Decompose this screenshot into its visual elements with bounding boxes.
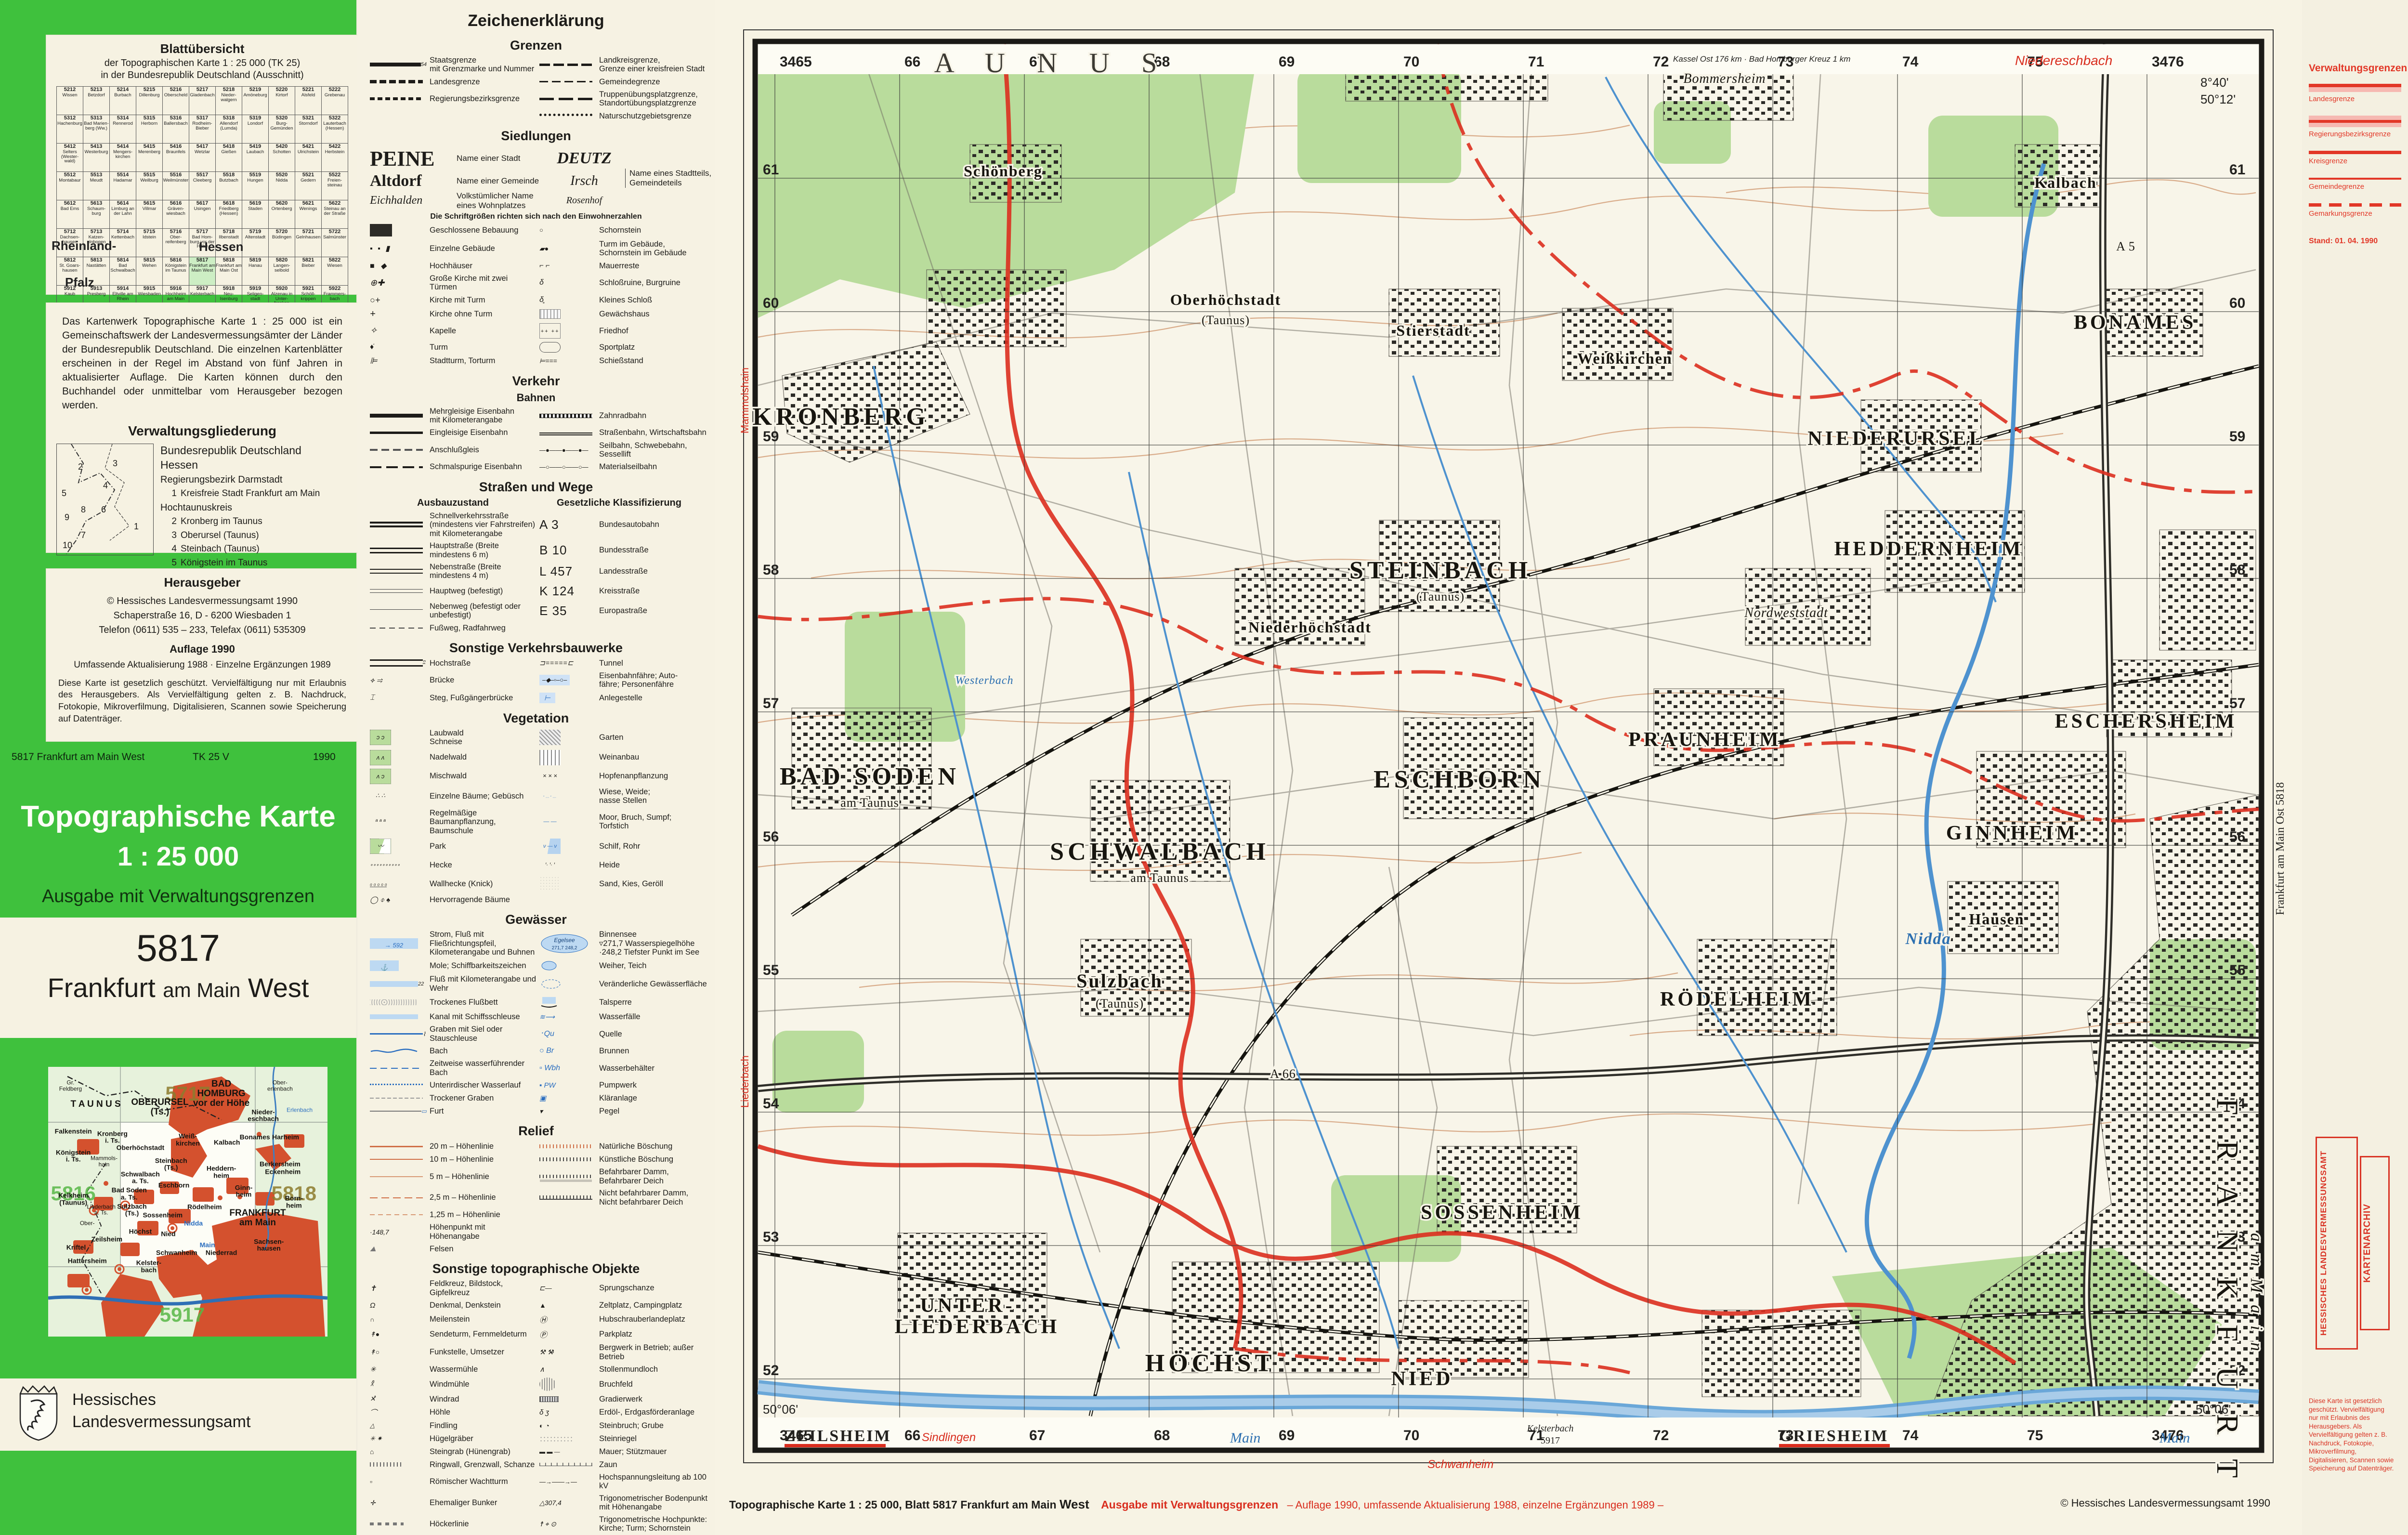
sheet-cell-5721: 5721Gelnhausen <box>295 229 322 257</box>
sheet-cell-5314: 5314Rennerod <box>110 115 136 144</box>
bottom-label-griesheim: GRIESHEIM <box>1779 1427 1888 1445</box>
admin-structure-title: Verwaltungsgliederung <box>46 423 359 439</box>
legend-symbol-s_ko: + <box>370 309 427 320</box>
legend-label: Regierungsbezirksgrenze <box>430 94 537 103</box>
legend-note: Die Schriftgrößen richten sich nach den … <box>370 212 702 221</box>
legend-symbol-re_20 <box>370 1141 427 1151</box>
legend-label: Bach <box>430 1047 537 1055</box>
legend-symbol-w_fall: ≋⟶ <box>539 1012 596 1022</box>
legend-label: Seilbahn, Schwebebahn, Sessellift <box>599 441 711 459</box>
legend-symbol-o_funk: ↟○ <box>370 1348 427 1357</box>
legend-symbol-w_trofl <box>370 997 427 1007</box>
sheet-cell-5512: 5512Montabaur <box>57 172 83 200</box>
grid-number: 74 <box>1902 54 1919 70</box>
legend-label: Hochstraße <box>430 659 537 668</box>
legend-symbol-v_zahn <box>539 411 596 420</box>
inset-place-label: Sossenheim <box>143 1212 183 1219</box>
legend-symbol-s_sturm: ⊫ <box>370 356 427 366</box>
sheet-cell-5422: 5422Herbstein <box>322 144 348 172</box>
inset-place-label: Kalbach <box>214 1139 240 1146</box>
inset-place-label: Born- heim <box>285 1194 303 1208</box>
legend-label: Mole; Schiffbarkeitszeichen <box>430 961 537 970</box>
legend-symbol-s_beb <box>370 224 427 236</box>
map-place-label: Nordweststadt <box>1744 605 1828 620</box>
sheet-cell-5520: 5520Nidda <box>269 172 295 200</box>
sheet-cell-5213: 5213Betzdorf <box>83 87 110 115</box>
legend-label: Straßenbahn, Wirtschaftsbahn <box>599 428 711 437</box>
legend-label: Funkstelle, Umsetzer <box>430 1348 537 1356</box>
legend-label: Furt <box>430 1107 537 1115</box>
legend-label: Höhenpunkt mit Höhenangabe <box>430 1223 537 1241</box>
legend-label: Sportplatz <box>599 343 711 352</box>
legend-label: Graben mit Siel oder Stauschleuse <box>430 1025 537 1043</box>
inset-place-label: Steinbach (Ts.) <box>155 1157 187 1171</box>
legend-symbol-g_staat: 54 <box>370 60 427 69</box>
inset-place-label: Weiß- kirchen <box>176 1133 200 1147</box>
legend-symbol-o_riegel <box>539 1434 596 1443</box>
road-class-label: Bundesautobahn <box>599 520 711 529</box>
sheet-cell-5215: 5215Dillenburg <box>136 87 163 115</box>
legend-label: Schilf, Rohr <box>599 842 711 851</box>
legend-label: Zaun <box>599 1460 711 1469</box>
legend-label: Geschlossene Bebauung <box>430 226 537 235</box>
legend-symbol-g_nat <box>539 111 596 121</box>
legend-label: Schloßruine, Burgruine <box>599 278 711 287</box>
legend-symbol-o_zaun <box>539 1460 596 1469</box>
cover-subtitle: Ausgabe mit Verwaltungsgrenzen <box>0 886 356 907</box>
legend-label: Landesgrenze <box>430 78 537 86</box>
admin-borders-legend: LandesgrenzeRegierungsbezirksgrenzeKreis… <box>2302 84 2408 218</box>
stand-date: Stand: 01. 04. 1990 <box>2309 237 2401 246</box>
sheet-cell-5821: 5821Bieber <box>295 257 322 286</box>
legend-symbol-s_geb: ▪ ▪ ▮ <box>370 244 427 253</box>
legend-label: Trigonometrische Hochpunkte: Kirche; Tur… <box>599 1515 711 1533</box>
neighbor-sheet-right: Frankfurt am Main Ost 5818 <box>2274 782 2287 915</box>
legend-symbol-veg_laub: ɔ ɔ <box>370 730 427 745</box>
legend-label: Sendeturm, Fernmeldeturm <box>430 1330 537 1338</box>
sheet-cell-5716: 5716Ober-reifenberg <box>163 229 189 257</box>
legend-label: Kapelle <box>430 327 537 335</box>
map-place-label: (Taunus) <box>1416 590 1465 604</box>
legend-label: Hauptweg (befestigt) <box>430 587 537 595</box>
legend-symbol-b_faehre: –◆–▫–○– <box>539 675 596 685</box>
sheet-cell-5820: 5820Langen-selbold <box>269 257 295 286</box>
map-place-label: NIED <box>1391 1368 1453 1390</box>
legend-label: Kläranlage <box>599 1094 711 1102</box>
diagram-number: 10 <box>63 540 72 551</box>
legend-symbol-w_unter <box>370 1080 427 1090</box>
legend-symbol-w_kanal: ⋈ <box>370 1012 427 1022</box>
inset-place-label: Ginn- heim <box>235 1184 253 1198</box>
road-class-code: L 457 <box>539 564 596 579</box>
legend-symbol-re_kun <box>539 1155 596 1164</box>
legend-symbol-veg_wall: ₀ ₀ ₀ ₀ ₀ <box>370 879 427 889</box>
legend-label: Trockener Graben <box>430 1094 537 1102</box>
sheet-cell-5414: 5414Mengers-kirchen <box>110 144 136 172</box>
border-legend-item: Gemeindegrenze <box>2309 178 2401 191</box>
inset-place-label: Eckenheim <box>265 1168 301 1176</box>
map-place-label: am Taunus <box>840 796 899 810</box>
legend-symbol-o_sende: ↟● <box>370 1329 427 1339</box>
border-legend-item: Kreisgrenze <box>2309 151 2401 165</box>
legend-label: Einzelne Bäume; Gebüsch <box>430 792 537 800</box>
legend-symbol-w_pw: ▪ PW <box>539 1080 596 1090</box>
inset-place-label: Rödelheim <box>187 1204 222 1211</box>
inset-place-label: Erlenbach <box>287 1107 313 1113</box>
legend-label: Wassermühle <box>430 1365 537 1374</box>
grid-number: 67 <box>1029 1428 1045 1443</box>
legend-label: Bergwerk in Betrieb; außer Betrieb <box>599 1343 711 1361</box>
legend-label: Nadelwald <box>430 753 537 761</box>
sheet-cell-5216: 5216Oberscheld <box>163 87 189 115</box>
inset-place-label: Königstein i. Ts. <box>56 1149 91 1163</box>
sheet-cell-5320: 5320Burg-Gemünden <box>269 115 295 144</box>
legend-symbol-veg_park: 〰 <box>370 839 427 854</box>
legend-symbol-o_wm: ✳ <box>370 1364 427 1374</box>
inset-place-label: Sulzbach (Ts.) <box>117 1203 146 1217</box>
legend-symbol-s_mauer: ⌐ ⌐ <box>539 261 596 271</box>
legend-symbol-o_denk: Ω <box>370 1300 427 1310</box>
inset-place-label: Niederrad <box>206 1249 237 1257</box>
legend-label: Kanal mit Schiffsschleuse <box>430 1012 537 1021</box>
diagram-number: 5 <box>62 488 66 499</box>
legend-symbol-o_hoehle: ⌒ <box>370 1407 427 1417</box>
sheet-cell-5714: 5714Kettenbach <box>110 229 136 257</box>
legend-symbol-w_strom: → 592 <box>370 938 427 949</box>
legend-symbol-re_5 <box>370 1172 427 1181</box>
map-place-label: SOSSENHEIM <box>1421 1202 1584 1224</box>
legend-symbol-veg_hecke: ∘∘∘∘∘∘∘∘∘∘ <box>370 860 427 870</box>
legend-symbol-re_damm <box>539 1172 596 1181</box>
inset-place-label: Hattersheim <box>68 1258 107 1265</box>
map-place-label: BONAMES <box>2074 312 2196 334</box>
map-place-label: A 66 <box>1270 1067 1296 1081</box>
legend-symbol-re_fels: ⛰ <box>370 1244 427 1254</box>
admin-entry: 1Kreisfreie Stadt Frankfurt am Main <box>160 487 320 501</box>
legend-symbol-b_steg: ⌶ <box>370 693 427 703</box>
legend-symbol-o_mauer: ▬ ▬ — <box>539 1447 596 1456</box>
grid-number: 57 <box>2229 695 2245 711</box>
bottom-label-schwanheim: Schwanheim <box>1427 1458 1493 1471</box>
margin-label-left-1: Mammolshain <box>739 367 751 433</box>
sheet-cell-5815: 5815Wehen <box>136 257 163 286</box>
grid-number: 55 <box>763 962 779 978</box>
legend-label: Römischer Wachtturm <box>430 1477 537 1486</box>
map-label-frankfurt: F R A N K F U R T <box>2211 1098 2245 1486</box>
legend-label: Meilenstein <box>430 1315 537 1324</box>
legend-symbol-s_kap: ✧ <box>370 326 427 336</box>
agency-stamp: HESSISCHES LANDESVERMESSUNGSAMT <box>2316 1137 2358 1350</box>
legend-label: Stadtturm, Torturm <box>430 356 537 365</box>
legend-label: Hervorragende Bäume <box>430 895 537 904</box>
legend-label: Turm im Gebäude, Schornstein im Gebäude <box>599 240 711 258</box>
legend-label: Gewächshaus <box>599 310 711 318</box>
legend-label: Nicht befahrbarer Damm, Nicht befahrbare… <box>599 1189 711 1207</box>
legend-label: Regelmäßige Baumanpflanzung, Baumschule <box>430 809 537 835</box>
sheet-index-table: 5212Wissen5213Betzdorf5214Burbach5215Dil… <box>56 86 348 314</box>
legend-symbol-w_ver <box>539 978 596 990</box>
grid-number: 69 <box>1279 54 1295 70</box>
sheet-cell-5315: 5315Herborn <box>136 115 163 144</box>
legend-label: Eisenbahnfähre; Auto- fähre; Personenfäh… <box>599 671 711 689</box>
grid-number: 72 <box>1653 1428 1669 1443</box>
inset-place-label: Bad Soden a. Ts. <box>112 1187 147 1201</box>
legend-label: 20 m – Höhenlinie <box>430 1142 537 1151</box>
sheet-cell-5715: 5715Idstein <box>136 229 163 257</box>
legend-symbol-o_trigh: ☨ ⌖ ⊙ <box>539 1519 596 1529</box>
legend-label: Denkmal, Denkstein <box>430 1301 537 1310</box>
sheet-cell-5514: 5514Hadamar <box>110 172 136 200</box>
sheet-cell-5319: 5319Londorf <box>242 115 269 144</box>
legend-label: Wiese, Weide; nasse Stellen <box>599 787 711 805</box>
map-place-label: HEDDERNHEIM <box>1834 538 2024 560</box>
legend-symbol-r_hweg <box>370 586 427 596</box>
admin-entry: 2Kronberg im Taunus <box>160 515 320 529</box>
sheet-cell-5619: 5619Staden <box>242 200 269 229</box>
legend-label: Hecke <box>430 861 537 869</box>
grid-number: 56 <box>2229 829 2245 845</box>
map-place-label: Hausen <box>1969 910 2024 928</box>
legend-label: Feldkreuz, Bildstock, Gipfelkreuz <box>430 1279 537 1297</box>
legend-symbol-g_kreis <box>539 60 596 69</box>
map-label-am-main: a m M a i n <box>2247 1233 2266 1355</box>
legend-symbol-o_kreuz: ✝ <box>370 1284 427 1293</box>
intro-box: Das Kartenwerk Topographische Karte 1 : … <box>46 302 359 553</box>
legend-label: Mauer; Stützmauer <box>599 1447 711 1456</box>
legend-section-title: Straßen und Wege <box>370 480 702 495</box>
legend-label: 1,25 m – Höhenlinie <box>430 1210 537 1219</box>
legend-label: Mehrgleisige Eisenbahn mit Kilometeranga… <box>430 407 537 425</box>
sheet-cell-5214: 5214Burbach <box>110 87 136 115</box>
grid-number: 60 <box>2229 295 2245 311</box>
legend-symbol-w_br: ○ Br <box>539 1046 596 1056</box>
inset-place-label: Bonames <box>240 1133 270 1141</box>
border-legend-item: Landesgrenze <box>2309 84 2401 103</box>
inset-place-label: Ober- erlenbach <box>267 1080 293 1092</box>
legend-label: Heide <box>599 861 711 869</box>
legend-symbol-v_mehr <box>370 411 427 420</box>
grid-number: 3465 <box>780 54 812 70</box>
sheet-cell-5519: 5519Hungen <box>242 172 269 200</box>
grid-number: 75 <box>2027 1428 2043 1443</box>
map-place-label: am Taunus <box>1130 871 1189 885</box>
legend-symbol-w_graben: ⌇ <box>370 1029 427 1039</box>
legend-symbol-s_tig: ▰● <box>539 244 596 253</box>
border-legend-item: Gemarkungsgrenze <box>2309 203 2401 218</box>
sheet-cell-5615: 5615Villmar <box>136 200 163 229</box>
corner-lat-right-top: 50°12' <box>2200 92 2236 106</box>
sheet-cell-5220: 5220Kirtorf <box>269 87 295 115</box>
sheet-cell-5221: 5221Alsfeld <box>295 87 322 115</box>
grid-number: 3476 <box>2152 54 2184 70</box>
sheet-cell-5712: 5712Dachsen-hausen <box>57 229 83 257</box>
year: 1990 <box>313 751 336 763</box>
legend-title: Zeichenerklärung <box>370 12 702 30</box>
legend-symbol-r_nweg <box>370 606 427 616</box>
legend-column: Zeichenerklärung Grenzen 54Staatsgrenze … <box>357 0 715 1535</box>
legend-symbol-w_pegel: ▾ <box>539 1106 596 1116</box>
map-place-label: LIEDERBACH <box>895 1316 1060 1338</box>
legend-label: Steinbruch; Grube <box>599 1421 711 1430</box>
map-place-label: HÖCHST <box>1145 1350 1276 1377</box>
inset-place-label: OBERURSEL (Ts.) <box>131 1098 188 1117</box>
corner-lon-right: 8°40' <box>2200 75 2229 90</box>
legend-symbol-w_see: Egelsee271,7 248,2 <box>539 933 596 954</box>
legend-symbol-veg_hopfen: × × × <box>539 769 596 784</box>
legend-symbol-w_bach <box>370 1046 427 1056</box>
legend-label: Große Kirche mit zwei Türmen <box>430 274 537 292</box>
admin-entry: Bundesrepublik Deutschland <box>160 444 320 458</box>
bottom-label-main-2: Main <box>2159 1430 2190 1446</box>
inset-place-label: Kriftel <box>66 1244 86 1251</box>
sheet-cell-5822: 5822Wiesen <box>322 257 348 286</box>
admin-entry: Hessen <box>160 458 320 472</box>
legend-label: Wallhecke (Knick) <box>430 879 537 888</box>
legend-symbol-w_tal <box>539 996 596 1009</box>
sheet-cell-5720: 5720Büdingen <box>269 229 295 257</box>
legend-label: Quelle <box>599 1030 711 1038</box>
legend-label: Truppenübungsplatzgrenze, Standortübungs… <box>599 90 711 108</box>
legend-label: Schmalspurige Eisenbahn <box>430 462 537 471</box>
legend-symbol-o_hub: Ⓗ <box>539 1313 596 1325</box>
inset-place-label: FRANKFURT am Main <box>229 1208 286 1228</box>
legend-label: Trigonometrischer Bodenpunkt mit Höhenan… <box>599 1494 711 1512</box>
legend-label: Hauptstraße (Breite mindestens 6 m) <box>430 541 537 559</box>
bottom-label-main: Main <box>1230 1430 1260 1446</box>
legend-symbol-o_park: Ⓟ <box>539 1328 596 1340</box>
sheet-cell-5618: 5618Friedberg (Hessen) <box>216 200 242 229</box>
legend-section-title: Siedlungen <box>370 129 702 144</box>
inset-place-label: Sachsen- hausen <box>254 1238 284 1252</box>
sheet-cell-5814: 5814Bad Schwalbach <box>110 257 136 286</box>
sheet-cell-5818: 5818Frankfurt am Main Ost <box>216 257 242 286</box>
map-place-label: ESCHERSHEIM <box>2055 710 2238 733</box>
legend-symbol-w_weiher <box>539 960 596 971</box>
inset-place-label: Main <box>200 1241 215 1248</box>
sheet-cell-5819: 5819Hanau <box>242 257 269 286</box>
map-place-label: BAD SODEN <box>780 763 960 790</box>
grid-number: 61 <box>763 162 779 178</box>
legend-label: Parkplatz <box>599 1330 711 1338</box>
roads-subhead-right: Gesetzliche Klassifizierung <box>536 498 702 509</box>
sheet-cell-5417: 5417Wetzlar <box>189 144 216 172</box>
inset-place-label: Ober- <box>80 1220 95 1227</box>
inset-place-label: Harheim <box>272 1133 299 1141</box>
sheet-cell-5313: 5313Bad Marien-berg (Ww.) <box>83 115 110 144</box>
roads-subhead-left: Ausbauzustand <box>370 498 536 509</box>
legend-symbol-o_stollen: ∧ <box>539 1364 596 1374</box>
legend-label: Weinanbau <box>599 753 711 761</box>
inset-place-label: T A U N U S <box>71 1100 121 1109</box>
legend-label: Kirche mit Turm <box>430 296 537 304</box>
sheet-cell-5420: 5420Schotten <box>269 144 295 172</box>
map-place-label: RÖDELHEIM <box>1660 988 1814 1010</box>
legend-label: Zeltplatz, Campingplatz <box>599 1301 711 1310</box>
legend-symbol-s_sport <box>539 342 596 353</box>
cover-panel: Blattübersicht der Topographischen Karte… <box>0 0 356 1535</box>
legend-label: Eingleisige Eisenbahn <box>430 428 537 437</box>
settlement-name-samples: PEINEName einer Stadt DEUTZ Name eines S… <box>370 146 702 210</box>
legend-symbol-veg_garten <box>539 730 596 745</box>
map-place-label: (Taunus) <box>1096 997 1144 1010</box>
legend-symbol-s_schl: δ̥ <box>539 295 596 305</box>
sheet-cell-5616: 5616Gräven-wiesbach <box>163 200 189 229</box>
right-margin-strip: Verwaltungsgrenzen LandesgrenzeRegierung… <box>2302 0 2408 1535</box>
legend-symbol-o_hsp: —→——→— <box>539 1477 596 1486</box>
grid-number: 52 <box>763 1363 779 1378</box>
sheet-cell-5622: 5622Steinau an der Straße <box>322 200 348 229</box>
diagram-number: 6 <box>101 505 106 515</box>
legend-label: Park <box>430 842 537 851</box>
legend-section-title: Gewässer <box>370 912 702 927</box>
legend-label: Brunnen <box>599 1047 711 1055</box>
legend-symbol-s_schorn: ○ <box>539 225 596 235</box>
map-place-label: SCHWALBACH <box>1050 838 1269 866</box>
grid-number: 57 <box>763 695 779 711</box>
sheet-cell-5413: 5413Westerburg <box>83 144 110 172</box>
diagram-number: 4 <box>103 481 108 491</box>
map-place-label: Oberhöchstadt <box>1170 291 1281 308</box>
sheet-cell-5212: 5212Wissen <box>57 87 83 115</box>
legend-symbol-re_hp: ·148,7 <box>370 1227 427 1237</box>
map-place-label: (Taunus) <box>1202 313 1250 327</box>
grid-number: 55 <box>2229 962 2245 978</box>
legend-label: Hochspannungsleitung ab 100 kV <box>599 1473 711 1491</box>
inset-place-label: Mammols- hain <box>91 1155 118 1167</box>
sheet-cell-5521: 5521Gedern <box>295 172 322 200</box>
grid-number: 53 <box>763 1229 779 1245</box>
legend-symbol-b_anlege: ⊢ <box>539 693 596 703</box>
legend-label: Anschlußgleis <box>430 446 537 454</box>
legend-label: Schnellverkehrsstraße (mindestens vier F… <box>430 512 537 538</box>
border-legend-item: Regierungsbezirksgrenze <box>2309 116 2401 138</box>
sheet-index-subtitle1: der Topographischen Karte 1 : 25 000 (TK… <box>46 57 359 69</box>
legend-symbol-s_k2: ⊕✚ <box>370 278 427 288</box>
sheet-cell-5513: 5513Meudt <box>83 172 110 200</box>
copyright-notice: Diese Karte ist gesetzlich geschützt. Ve… <box>46 672 359 725</box>
legend-label: Hochhäuser <box>430 262 537 270</box>
legend-label: Unterirdischer Wasserlauf <box>430 1081 537 1089</box>
legend-symbol-o_stein: ⌂ <box>370 1447 427 1456</box>
legend-label: Wasserfälle <box>599 1012 711 1021</box>
legend-symbol-o_zelt: ▲ <box>539 1300 596 1310</box>
legend-symbol-w_wbh: ▫ Wbh <box>539 1063 596 1073</box>
map-place-label: Sulzbach <box>1076 970 1163 992</box>
legend-symbol-s_turm: ♦̍ <box>370 342 427 352</box>
legend-label: Anlegestelle <box>599 694 711 702</box>
legend-symbol-o_wr: ✕̂ <box>370 1394 427 1404</box>
legend-label: Moor, Bruch, Sumpf; Torfstich <box>599 813 711 831</box>
legend-label: Felsen <box>430 1245 537 1253</box>
legend-symbol-o_bunker: ✛ <box>370 1498 427 1508</box>
legend-symbol-r_neben <box>370 566 427 576</box>
inset-place-label: Nidda <box>184 1220 203 1227</box>
sheet-cell-5218: 5218Nieder-walgern <box>216 87 242 115</box>
legend-symbol-veg_herv: ◯ ⌽ ♠ <box>370 895 427 905</box>
legend-label: Landkreisgrenze, Grenze einer kreisfreie… <box>599 56 711 74</box>
cover-title-1: Topographische Karte <box>0 800 356 834</box>
map-canvas[interactable]: 3465666768697071727374753476346566676869… <box>715 0 2302 1488</box>
legend-symbol-g_reg <box>370 94 427 104</box>
legend-symbol-s_ruine: δ <box>539 278 596 288</box>
map-place-label: Westerbach <box>955 674 1013 687</box>
legend-symbol-o_sprung: ⊏— <box>539 1284 596 1293</box>
legend-label: Einzelne Gebäude <box>430 244 537 253</box>
legend-symbol-o_trig: △307,4 <box>539 1498 596 1508</box>
legend-label: Turm <box>430 343 537 352</box>
imprint-line: Topographische Karte 1 : 25 000, Blatt 5… <box>729 1497 2290 1512</box>
admin-diagram: 23458691710 <box>56 444 154 555</box>
